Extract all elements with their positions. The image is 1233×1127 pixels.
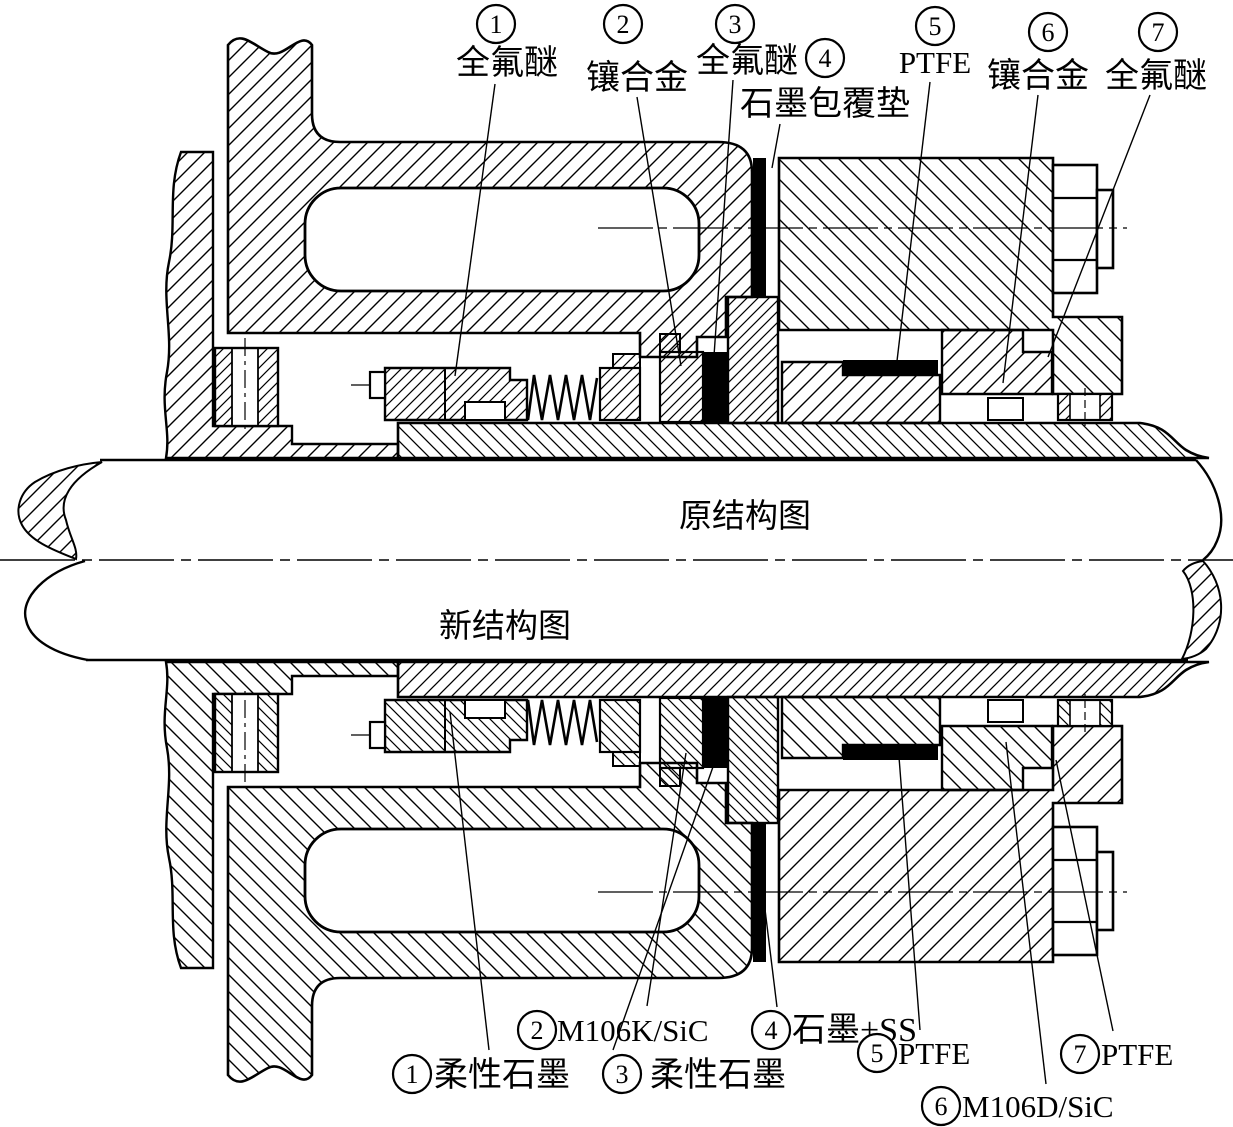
stationary-seat [942,330,1052,394]
seat-notch [988,398,1023,420]
shaft [0,460,1233,660]
callout-number-bottom-1: 1 [406,1060,419,1089]
drive-collar [351,368,527,420]
shaft-break-left-upper [18,462,102,559]
callout-label-top-7: 全氟醚 [1105,57,1207,95]
callout-label-bottom-2: M106K/SiC [557,1013,709,1048]
callout-label-bottom-1: 柔性石墨 [434,1056,570,1094]
set-screw [1058,388,1112,426]
figure-canvas: 原结构图新结构图1全氟醚2镶合金3全氟醚4石墨包覆垫5PTFE6镶合金7全氟醚1… [0,0,1233,1127]
callout-number-top-4: 4 [819,44,832,73]
callout-label-top-4: 石墨包覆垫 [740,85,910,123]
shaft-break-right-upper [1196,460,1221,560]
callout-label-bottom-3: 柔性石墨 [650,1056,786,1094]
callout-number-bottom-2: 2 [531,1016,544,1045]
callout-number-bottom-6: 6 [935,1092,948,1121]
callout-label-bottom-7: PTFE [1101,1037,1173,1072]
seal-follower [728,297,778,423]
callout-label-top-3: 全氟醚 [696,42,798,80]
section-label-new-structure: 新结构图 [439,608,571,645]
callout-number-bottom-5: 5 [871,1039,884,1068]
callout-label-top-2: 镶合金 [586,59,688,97]
callout-number-top-3: 3 [729,10,742,39]
wall-stud [215,338,278,434]
callout-number-bottom-3: 3 [616,1060,629,1089]
callout-number-top-6: 6 [1042,18,1055,47]
engineering-drawing: 原结构图新结构图1全氟醚2镶合金3全氟醚4石墨包覆垫5PTFE6镶合金7全氟醚1… [0,0,1233,1127]
callout-label-bottom-6: M106D/SiC [962,1089,1114,1124]
callout-label-bottom-5: PTFE [898,1036,970,1071]
callout-label-top-5: PTFE [899,45,971,80]
compression-spring [528,375,597,420]
secondary-seal [703,352,728,422]
ptfe-wedge [843,360,938,375]
shaft-break-left-lower [25,561,88,660]
shaft-sleeve [398,423,1209,458]
callout-label-top-1: 全氟醚 [456,44,558,82]
callout-number-top-2: 2 [617,10,630,39]
callout-number-bottom-7: 7 [1074,1040,1087,1069]
callout-number-bottom-4: 4 [765,1016,778,1045]
callout-number-top-1: 1 [490,10,503,39]
housing-cavity [305,188,699,291]
section-label-original-structure: 原结构图 [679,498,811,535]
spring-plate [600,354,640,420]
shaft-break-right-lower [1182,561,1221,659]
seal-assembly-half [165,38,1209,458]
callout-label-top-6: 镶合金 [987,57,1089,95]
callout-number-top-5: 5 [929,12,942,41]
callout-number-top-7: 7 [1152,18,1165,47]
